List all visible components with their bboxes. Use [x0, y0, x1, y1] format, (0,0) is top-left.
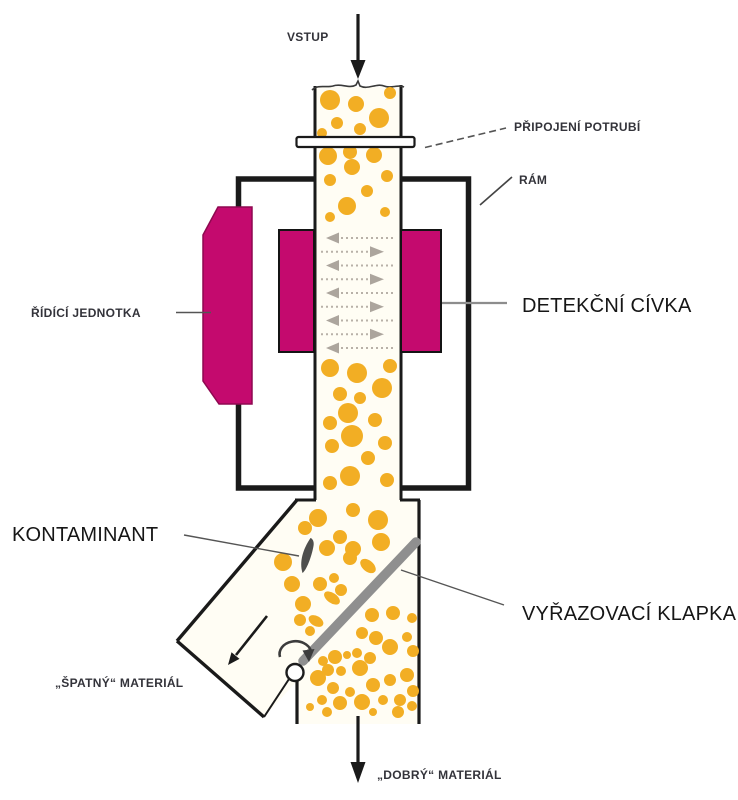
- material-particle: [317, 695, 327, 705]
- material-particle: [345, 687, 355, 697]
- material-particle: [378, 695, 388, 705]
- material-particle: [294, 614, 306, 626]
- material-particle: [324, 174, 336, 186]
- material-particle: [320, 90, 340, 110]
- material-particle: [354, 694, 370, 710]
- material-particle: [306, 703, 314, 711]
- material-particle: [331, 117, 343, 129]
- material-particle: [361, 451, 375, 465]
- material-particle: [328, 650, 342, 664]
- material-particle: [369, 631, 383, 645]
- material-particle: [407, 613, 417, 623]
- material-particle: [352, 660, 368, 676]
- material-particle: [356, 627, 368, 639]
- material-particle: [284, 576, 300, 592]
- material-particle: [338, 197, 356, 215]
- material-particle: [338, 403, 358, 423]
- material-particle: [319, 147, 337, 165]
- material-particle: [344, 159, 360, 175]
- material-particle: [392, 706, 404, 718]
- material-particle: [325, 439, 339, 453]
- metal-detector-diagram: VSTUP PŘIPOJENÍ POTRUBÍ RÁM ŘÍDÍCÍ JEDNO…: [0, 0, 738, 800]
- material-particle: [354, 392, 366, 404]
- material-particle: [400, 668, 414, 682]
- material-particle: [352, 648, 362, 658]
- label-detekcni-civka: DETEKČNÍ CÍVKA: [522, 294, 692, 317]
- control-unit-shape: [203, 207, 252, 404]
- material-particle: [407, 701, 417, 711]
- material-particle: [295, 596, 311, 612]
- label-vyrazovaci-klapka: VYŘAZOVACÍ KLAPKA: [522, 602, 737, 625]
- material-particle: [348, 96, 364, 112]
- label-dobry-material: „DOBRÝ“ MATERIÁL: [377, 767, 502, 782]
- material-particle: [313, 577, 327, 591]
- material-particle: [380, 207, 390, 217]
- material-particle: [383, 359, 397, 373]
- label-vstup: VSTUP: [287, 30, 329, 44]
- material-particle: [402, 632, 412, 642]
- material-particle: [384, 87, 396, 99]
- material-particle: [305, 626, 315, 636]
- material-particle: [384, 674, 396, 686]
- diagram-canvas: VSTUP PŘIPOJENÍ POTRUBÍ RÁM ŘÍDÍCÍ JEDNO…: [0, 0, 738, 800]
- material-particle: [364, 652, 376, 664]
- detection-coil-right-block: [401, 230, 441, 352]
- material-particle: [366, 147, 382, 163]
- material-particle: [336, 666, 346, 676]
- detection-coil-left-block: [279, 230, 314, 352]
- material-particle: [380, 473, 394, 487]
- material-particle: [325, 212, 335, 222]
- material-particle: [368, 413, 382, 427]
- material-particle: [298, 521, 312, 535]
- label-kontaminant: KONTAMINANT: [12, 524, 158, 546]
- material-particle: [366, 678, 380, 692]
- material-particle: [343, 551, 357, 565]
- material-particle: [347, 363, 367, 383]
- material-particle: [343, 651, 351, 659]
- material-particle: [372, 533, 390, 551]
- material-particle: [372, 378, 392, 398]
- material-particle: [319, 540, 335, 556]
- material-particle: [274, 553, 292, 571]
- material-particle: [333, 696, 347, 710]
- good-material-arrow-head: [351, 762, 366, 783]
- material-particle: [407, 645, 419, 657]
- material-particle: [310, 670, 326, 686]
- material-particle: [382, 639, 398, 655]
- material-particle: [341, 425, 363, 447]
- material-particle: [378, 436, 392, 450]
- material-particle: [365, 608, 379, 622]
- material-particle: [369, 708, 377, 716]
- material-particle: [333, 387, 347, 401]
- material-particle: [323, 476, 337, 490]
- inlet-arrow-head: [351, 60, 366, 79]
- material-particle: [321, 359, 339, 377]
- material-particle: [381, 170, 393, 182]
- label-pripojeni-potrubi: PŘIPOJENÍ POTRUBÍ: [514, 119, 641, 134]
- material-particle: [369, 108, 389, 128]
- material-particle: [361, 185, 373, 197]
- material-particle: [407, 685, 419, 697]
- material-particle: [346, 503, 360, 517]
- label-spatny-material: „ŠPATNÝ“ MATERIÁL: [55, 675, 183, 690]
- flange-leader-line: [425, 128, 506, 148]
- label-ram: RÁM: [519, 172, 547, 187]
- material-particle: [368, 510, 388, 530]
- label-ridici-jednotka: ŘÍDÍCÍ JEDNOTKA: [31, 305, 141, 320]
- material-particle: [340, 466, 360, 486]
- material-particle: [386, 606, 400, 620]
- flap-pivot: [287, 664, 304, 681]
- material-particle: [329, 573, 339, 583]
- material-particle: [322, 707, 332, 717]
- material-particle: [354, 123, 366, 135]
- frame-leader-line: [480, 177, 512, 205]
- material-particle: [335, 584, 347, 596]
- pipe-flange: [297, 137, 415, 147]
- material-particle: [327, 682, 339, 694]
- material-particle: [394, 694, 406, 706]
- material-particle: [309, 509, 327, 527]
- material-particle: [333, 530, 347, 544]
- material-particle: [323, 416, 337, 430]
